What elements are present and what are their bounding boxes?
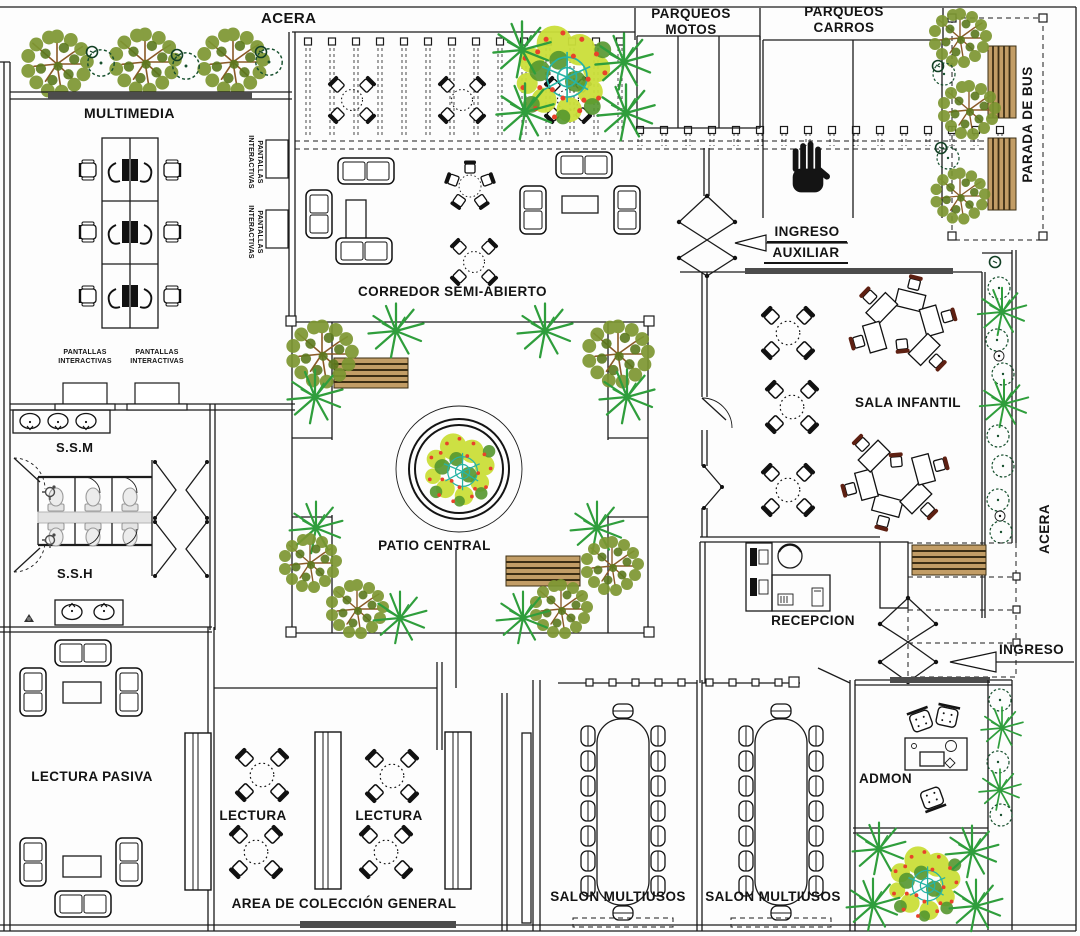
corridor-lounge xyxy=(306,152,640,287)
label-lectura-2: LECTURA xyxy=(352,808,426,824)
floorplan-linework: .w{stroke:#1c1c1c;stroke-width:1.3;fill:… xyxy=(0,0,1080,936)
label-corredor-semi-abierto: CORREDOR SEMI-ABIERTO xyxy=(350,284,555,300)
label-lectura-pasiva: LECTURA PASIVA xyxy=(24,769,160,785)
sofa-group-2 xyxy=(20,838,142,917)
patio-central xyxy=(279,304,655,644)
label-parqueos-motos: PARQUEOS MOTOS xyxy=(637,6,745,37)
recepcion-area xyxy=(746,543,830,611)
sidewalk-trees xyxy=(21,28,282,99)
label-ingreso-auxiliar-1: INGRESO xyxy=(767,224,847,243)
label-parada-de-bus: PARADA DE BUS xyxy=(1020,37,1036,212)
bathrooms xyxy=(0,404,215,632)
label-salon-multiusos-2: SALON MULTIUSOS xyxy=(699,889,847,905)
label-salon-multiusos-1: SALON MULTIUSOS xyxy=(544,889,692,905)
label-ssm: S.S.M xyxy=(56,441,93,456)
label-pantallas-interactivas-2: PANTALLAS INTERACTIVAS xyxy=(119,349,195,367)
label-acera-right: ACERA xyxy=(1037,498,1053,560)
label-area-coleccion-general: AREA DE COLECCIÓN GENERAL xyxy=(220,896,468,912)
garden-bottom-right xyxy=(847,823,1003,932)
label-patio-central: PATIO CENTRAL xyxy=(372,538,497,554)
label-recepcion: RECEPCION xyxy=(763,613,863,629)
floor-plan: .w{stroke:#1c1c1c;stroke-width:1.3;fill:… xyxy=(0,0,1080,936)
label-pantallas-interactivas-3: PANTALLAS INTERACTIVAS xyxy=(246,133,264,191)
hand-icon xyxy=(793,141,832,192)
label-lectura-1: LECTURA xyxy=(216,808,290,824)
pergola-structure xyxy=(295,38,1016,149)
parqueos-motos-stalls xyxy=(637,36,760,128)
label-parqueos-carros: PARQUEOS CARROS xyxy=(788,4,900,35)
parqueos-carros-stalls xyxy=(763,40,942,218)
label-pantallas-interactivas-1: PANTALLAS INTERACTIVAS xyxy=(47,349,123,367)
label-ingreso: INGRESO xyxy=(999,642,1064,658)
label-ingreso-auxiliar-2: AUXILIAR xyxy=(764,245,848,264)
label-sala-infantil: SALA INFANTIL xyxy=(849,395,967,411)
label-pantallas-interactivas-4: PANTALLAS INTERACTIVAS xyxy=(246,203,264,261)
label-ssh: S.S.H xyxy=(57,567,93,582)
label-admon: ADMON xyxy=(859,771,912,787)
label-acera-top: ACERA xyxy=(261,10,316,27)
label-multimedia: MULTIMEDIA xyxy=(84,105,175,121)
